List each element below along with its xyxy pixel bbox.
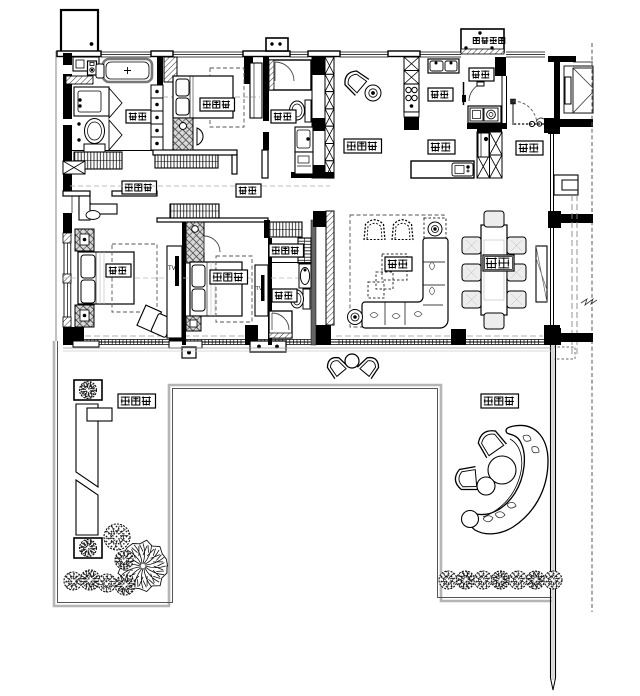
- svg-text:TV: TV: [256, 286, 263, 292]
- svg-text:TV: TV: [168, 266, 176, 272]
